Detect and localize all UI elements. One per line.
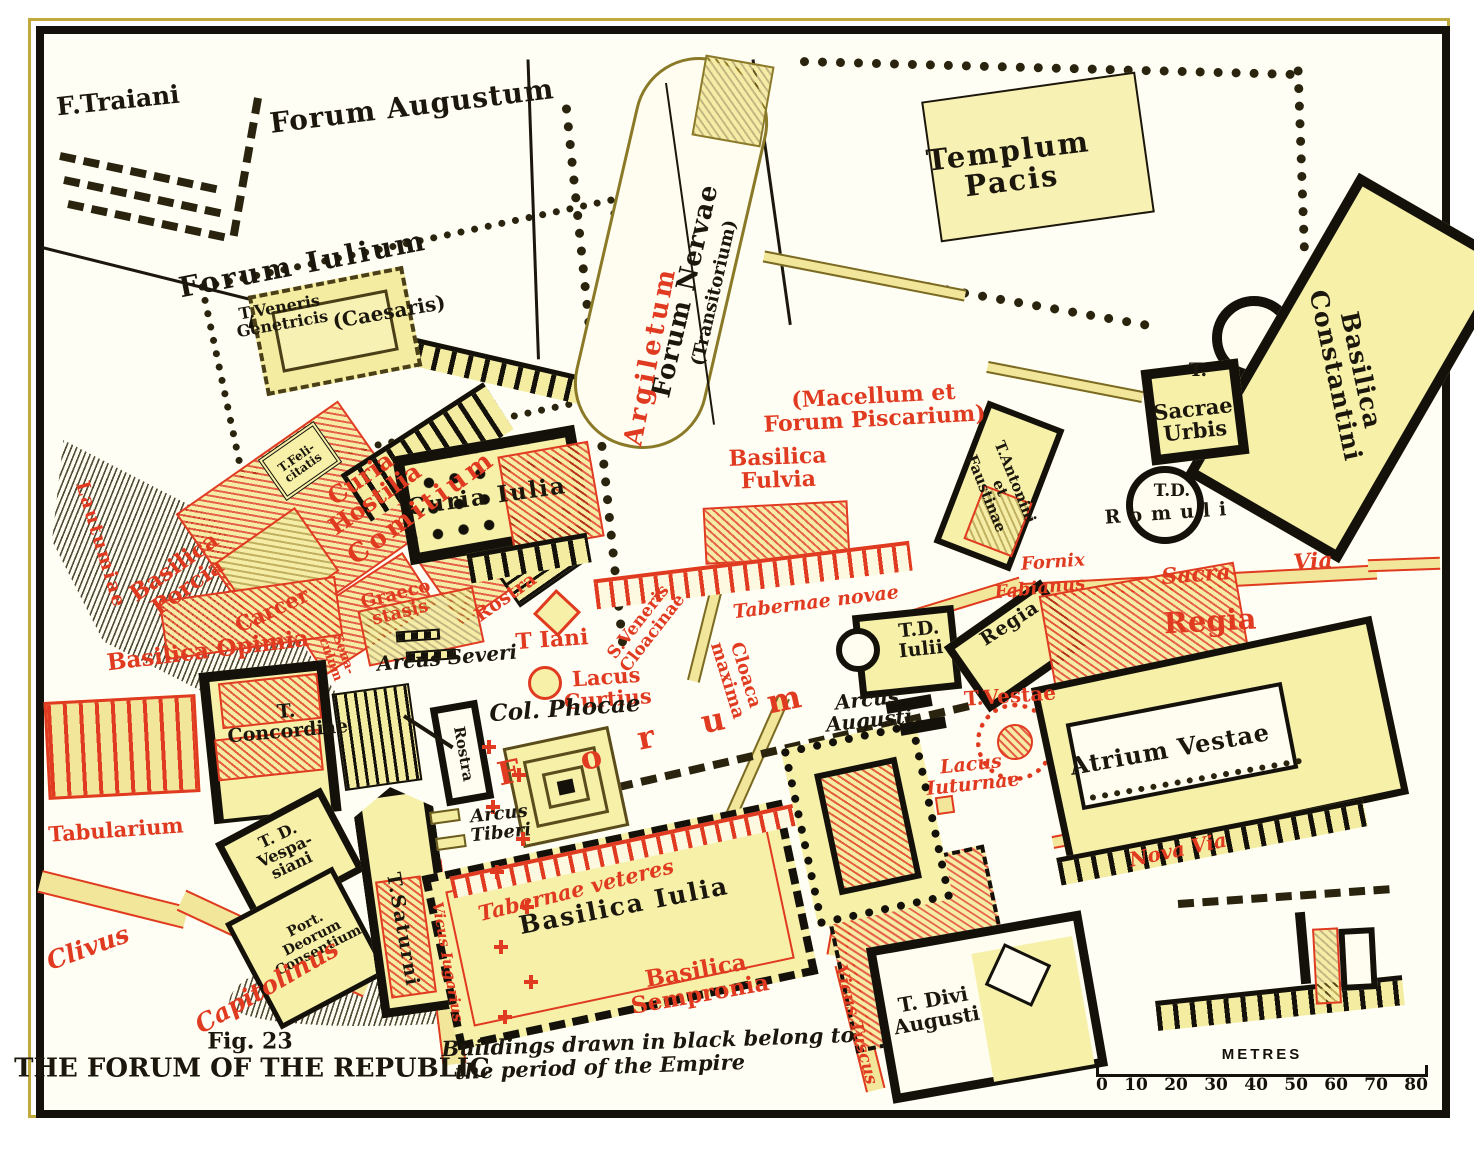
arcus-augusti-label: Arcus Augusti xyxy=(823,685,914,735)
t-d-abbrev-label: T.D. xyxy=(1154,483,1190,501)
scale-tick-10: 10 xyxy=(1124,1075,1148,1095)
t-d-iulii-label: T.D. Iulii xyxy=(896,618,944,662)
templum-pacis-label: Templum Pacis xyxy=(925,126,1096,206)
sacrae-urbis-label: Sacrae Urbis xyxy=(1152,394,1236,446)
basilica-sempronia-label: Basilica Sempronia xyxy=(625,947,771,1018)
basilica-constantini-label: Basilica Constantini xyxy=(1304,282,1391,463)
scale-tick-row: 01020304050607080 xyxy=(1096,1075,1428,1095)
sacra-label: Sacra xyxy=(1161,561,1232,589)
basilica-porcia-label: Basilica Porcia xyxy=(125,528,236,626)
tabularium-label: Tabularium xyxy=(48,814,184,845)
vicus-iugarius-label: Vicus Iugarius xyxy=(429,901,466,1024)
via-label: Via xyxy=(1293,549,1334,575)
basilica-opimia-label: Basilica Opimia xyxy=(106,627,311,675)
atrium-vestae-label: Atrium Vestae xyxy=(1068,720,1272,780)
forum-letter-o-label: o xyxy=(577,740,605,777)
scale-tick-50: 50 xyxy=(1284,1075,1308,1095)
macellum-forum-piscarium-label: (Macellum et Forum Piscarium) xyxy=(762,379,986,436)
s-veneris-cloacinae-label: S.Veneris Cloacinae xyxy=(603,580,688,675)
t-concordiae-label: T. Concordiae xyxy=(225,697,349,747)
forum-letter-m-label: m xyxy=(764,680,804,720)
forum-letter-f-label: F xyxy=(494,754,523,791)
caesaris-label: (Caesaris) xyxy=(331,292,447,332)
scale-tick-70: 70 xyxy=(1364,1075,1388,1095)
forum-letter-r-label: r xyxy=(634,720,657,756)
t-veneris-genetricis-label: T.Veneris Genetricis xyxy=(233,292,330,341)
basilica-fulvia-label: Basilica Fulvia xyxy=(728,444,828,493)
t-iani-label: T Iani xyxy=(515,626,589,654)
scale-tick-30: 30 xyxy=(1204,1075,1228,1095)
arcus-tiberi-label: Arcus Tiberi xyxy=(468,802,532,846)
scale-tick-80: 80 xyxy=(1404,1075,1428,1095)
forum-map: F.TraianiForum AugustumForum Iulium(Caes… xyxy=(0,0,1474,1164)
arcus-severi-label: Arcus Severi xyxy=(376,642,518,675)
t-d-vespasiani-label: T. D. Vespa- siani xyxy=(248,816,322,886)
regia-label: Regia xyxy=(1163,604,1257,639)
senaculum-label: Sena- culum xyxy=(317,631,358,683)
map-title-label: THE FORUM OF THE REPUBLIC xyxy=(14,1055,490,1082)
scale-tick-20: 20 xyxy=(1164,1075,1188,1095)
t-sacrae-urbis-t-label: T. xyxy=(1189,361,1207,381)
t-felicitatis-label: T.Feli- citatis xyxy=(276,441,325,486)
col-phocae-label: Col. Phocae xyxy=(489,692,642,726)
t-vestae-label: T.Vestae xyxy=(963,682,1056,709)
t-divi-augusti-label: T. Divi Augusti xyxy=(889,982,982,1038)
scale-tick-40: 40 xyxy=(1244,1075,1268,1095)
clivus-label: Clivus xyxy=(43,921,132,975)
lautumiae-label: Lautumiae xyxy=(71,479,128,611)
regia-small-label: Regia xyxy=(977,598,1043,650)
scale-bar: METRES 01020304050607080 xyxy=(1096,1046,1428,1095)
forum-augustum-label: Forum Augustum xyxy=(268,74,556,138)
lacus-iuturnae-label: Lacus Iuturnae xyxy=(923,750,1020,799)
scale-tick-60: 60 xyxy=(1324,1075,1348,1095)
f-traiani-label: F.Traiani xyxy=(55,82,181,121)
fabianus-label: Fabianus xyxy=(994,575,1086,603)
rostra-box-label: Rostra xyxy=(451,725,476,782)
graecostasis-label: Graeco stasis xyxy=(359,577,437,630)
rostra-red-label: Rostra xyxy=(472,570,541,626)
label-layer: F.TraianiForum AugustumForum Iulium(Caes… xyxy=(0,0,1474,1164)
nova-via-label: Nova Via xyxy=(1127,830,1228,871)
t-antonini-faustinae-label: T.Antonini et Faustinae xyxy=(962,439,1038,537)
fornix-label: Fornix xyxy=(1020,551,1085,574)
scale-unit-label: METRES xyxy=(1096,1046,1428,1063)
tabernae-novae-label: Tabernae novae xyxy=(732,583,900,623)
fig-number-label: Fig. 23 xyxy=(207,1031,292,1054)
t-saturni-label: T.Saturni xyxy=(382,871,422,989)
romuli-label: Romuli xyxy=(1104,500,1236,529)
scale-tick-0: 0 xyxy=(1096,1075,1108,1095)
forum-iulium-label: Forum Iulium xyxy=(176,226,429,303)
forum-letter-u-label: u xyxy=(698,702,728,739)
